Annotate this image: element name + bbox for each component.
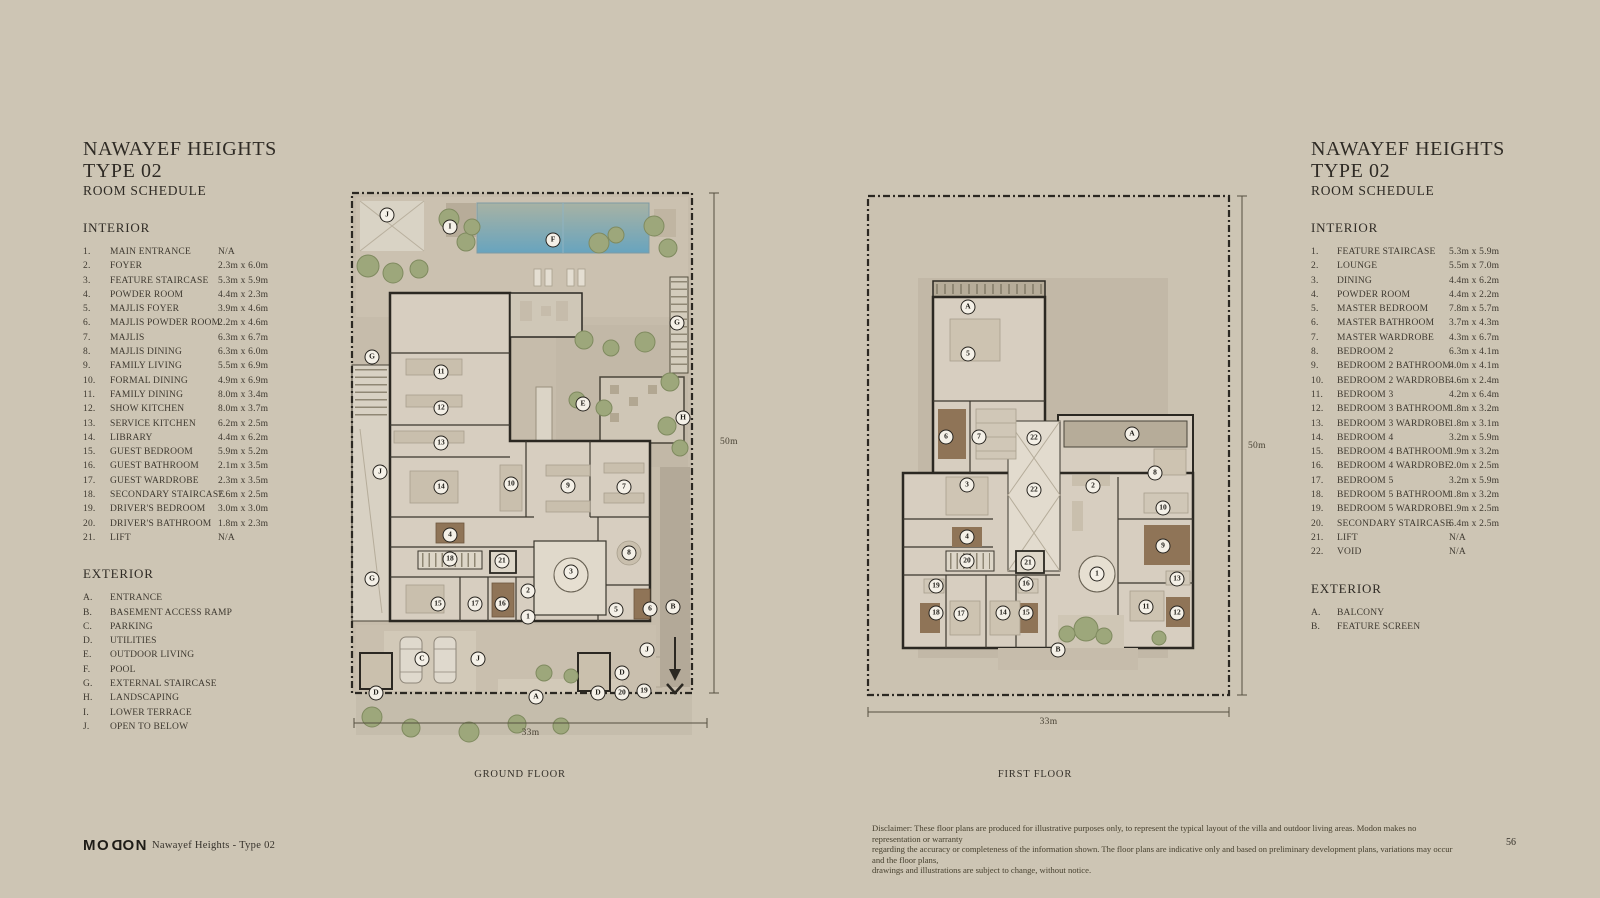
plan-marker: 14 (434, 480, 449, 495)
plan-marker: 5 (609, 603, 624, 618)
plan-marker: D (591, 686, 606, 701)
plan-marker: 16 (495, 597, 510, 612)
row-dimension: 5.3m x 5.9m (1449, 245, 1499, 259)
row-name: GUEST WARDROBE (110, 474, 218, 488)
row-number: 18. (1311, 488, 1337, 502)
plan-marker: 9 (1156, 539, 1171, 554)
row-name: POWDER ROOM (1337, 288, 1449, 302)
plan-marker: D (369, 686, 384, 701)
row-name: BEDROOM 3 (1337, 388, 1449, 402)
plan-marker: 6 (939, 430, 954, 445)
plan-marker: 3 (564, 565, 579, 580)
row-number: D. (83, 634, 110, 648)
row-name: BEDROOM 5 BATHROOM (1337, 488, 1449, 502)
row-dimension: 5.3m x 5.9m (218, 274, 268, 288)
row-name: GUEST BEDROOM (110, 445, 218, 459)
row-dimension: 2.0m x 2.5m (1449, 459, 1499, 473)
row-name: FORMAL DINING (110, 374, 218, 388)
row-number: 14. (1311, 431, 1337, 445)
row-number: E. (83, 648, 110, 662)
row-number: 21. (1311, 531, 1337, 545)
plan-marker: 8 (1148, 466, 1163, 481)
plan-marker: J (373, 465, 388, 480)
schedule-row: 17. BEDROOM 5 3.2m x 5.9m (1311, 474, 1511, 488)
row-name: LIFT (1337, 531, 1449, 545)
row-number: 9. (83, 359, 110, 373)
row-dimension: N/A (1449, 531, 1466, 545)
row-name: OUTDOOR LIVING (110, 648, 218, 662)
row-name: BEDROOM 3 WARDROBE (1337, 417, 1449, 431)
row-name: POOL (110, 663, 218, 677)
row-number: 5. (83, 302, 110, 316)
schedule-row: A. ENTRANCE (83, 591, 283, 605)
row-dimension: 3.0m x 3.0m (218, 502, 268, 516)
schedule-row: 18. BEDROOM 5 BATHROOM 1.8m x 3.2m (1311, 488, 1511, 502)
row-name: DINING (1337, 274, 1449, 288)
plan-marker: 15 (1019, 606, 1034, 621)
plan-marker: G (365, 350, 380, 365)
plan-marker: E (576, 397, 591, 412)
plan-marker: H (676, 411, 691, 426)
row-name: MAJLIS FOYER (110, 302, 218, 316)
schedule-row: 14. BEDROOM 4 3.2m x 5.9m (1311, 431, 1511, 445)
schedule-row: 21. LIFT N/A (83, 531, 283, 545)
row-dimension: 4.3m x 6.7m (1449, 331, 1499, 345)
plan-marker: B (666, 600, 681, 615)
plan-marker: 1 (1090, 567, 1105, 582)
ground-floor-markers: J I F G G 11 12 13 E H J 14 10 9 7 (348, 185, 740, 745)
plan-marker: 3 (960, 478, 975, 493)
disclaimer-line: drawings and illustrations are subject t… (872, 865, 1464, 876)
schedule-row: 3. FEATURE STAIRCASE 5.3m x 5.9m (83, 274, 283, 288)
schedule-row: 14. LIBRARY 4.4m x 6.2m (83, 431, 283, 445)
row-dimension: 1.9m x 3.2m (1449, 445, 1499, 459)
plan-marker: J (380, 208, 395, 223)
row-name: ENTRANCE (110, 591, 218, 605)
row-name: LIFT (110, 531, 218, 545)
first-height-dimension: 50m (1248, 441, 1266, 451)
schedule-row: 21. LIFT N/A (1311, 531, 1511, 545)
row-name: FEATURE STAIRCASE (110, 274, 218, 288)
row-number: 15. (83, 445, 110, 459)
row-number: H. (83, 691, 110, 705)
row-name: LOUNGE (1337, 259, 1449, 273)
plan-marker: C (415, 652, 430, 667)
plan-marker: 7 (617, 480, 632, 495)
row-dimension: 7.8m x 5.7m (1449, 302, 1499, 316)
row-number: 2. (83, 259, 110, 273)
row-name: MAIN ENTRANCE (110, 245, 218, 259)
interior-list: 1. FEATURE STAIRCASE 5.3m x 5.9m 2. LOUN… (1311, 245, 1511, 560)
plan-marker: 11 (434, 365, 449, 380)
row-number: I. (83, 706, 110, 720)
schedule-title-line3: ROOM SCHEDULE (1311, 182, 1511, 199)
row-dimension: 8.0m x 3.7m (218, 402, 268, 416)
plan-marker: 22 (1027, 483, 1042, 498)
plan-marker: 13 (1170, 572, 1185, 587)
row-number: 10. (1311, 374, 1337, 388)
plan-marker: 7 (972, 430, 987, 445)
schedule-row: 8. BEDROOM 2 6.3m x 4.1m (1311, 345, 1511, 359)
row-name: EXTERNAL STAIRCASE (110, 677, 218, 691)
schedule-title-line1: NAWAYEF HEIGHTS (1311, 138, 1511, 160)
row-dimension: 6.2m x 2.5m (218, 417, 268, 431)
row-number: 13. (83, 417, 110, 431)
row-dimension: 1.8m x 3.1m (1449, 417, 1499, 431)
interior-heading: INTERIOR (1311, 220, 1511, 236)
exterior-heading: EXTERIOR (83, 566, 283, 582)
plan-marker: 2 (1086, 479, 1101, 494)
schedule-row: A. BALCONY (1311, 606, 1511, 620)
logo-text: ON (123, 837, 149, 854)
row-name: PARKING (110, 620, 218, 634)
schedule-row: 15. GUEST BEDROOM 5.9m x 5.2m (83, 445, 283, 459)
first-floor-plan: A 5 6 7 22 A 3 22 2 8 10 9 4 20 21 (858, 183, 1278, 743)
row-name: BEDROOM 5 (1337, 474, 1449, 488)
row-number: 7. (83, 331, 110, 345)
row-number: 6. (83, 316, 110, 330)
plan-marker: 22 (1027, 431, 1042, 446)
footer-disclaimer: Disclaimer: These floor plans are produc… (872, 823, 1464, 876)
schedule-row: 5. MASTER BEDROOM 7.8m x 5.7m (1311, 302, 1511, 316)
row-number: 12. (1311, 402, 1337, 416)
row-name: BEDROOM 2 WARDROBE (1337, 374, 1449, 388)
row-number: 17. (1311, 474, 1337, 488)
plan-marker: 8 (622, 546, 637, 561)
row-name: GUEST BATHROOM (110, 459, 218, 473)
row-name: MAJLIS POWDER ROOM (110, 316, 218, 330)
plan-marker: 19 (929, 579, 944, 594)
row-dimension: 5.9m x 5.2m (218, 445, 268, 459)
row-dimension: N/A (218, 245, 235, 259)
modon-logo: MODON (83, 837, 148, 854)
plan-marker: 21 (495, 554, 510, 569)
row-number: 16. (1311, 459, 1337, 473)
row-dimension: 4.0m x 4.1m (1449, 359, 1499, 373)
schedule-row: 16. BEDROOM 4 WARDROBE 2.0m x 2.5m (1311, 459, 1511, 473)
room-schedule-left: NAWAYEF HEIGHTS TYPE 02 ROOM SCHEDULE IN… (83, 138, 283, 734)
row-name: SERVICE KITCHEN (110, 417, 218, 431)
plan-marker: 18 (443, 552, 458, 567)
exterior-heading: EXTERIOR (1311, 581, 1511, 597)
plan-marker: G (670, 316, 685, 331)
row-number: A. (83, 591, 110, 605)
row-name: MAJLIS (110, 331, 218, 345)
schedule-row: 12. SHOW KITCHEN 8.0m x 3.7m (83, 402, 283, 416)
plan-marker: 14 (996, 606, 1011, 621)
row-number: J. (83, 720, 110, 734)
row-name: FAMILY LIVING (110, 359, 218, 373)
schedule-row: 5. MAJLIS FOYER 3.9m x 4.6m (83, 302, 283, 316)
plan-marker: G (365, 572, 380, 587)
row-number: G. (83, 677, 110, 691)
row-name: BEDROOM 2 BATHROOM (1337, 359, 1449, 373)
row-dimension: 4.2m x 6.4m (1449, 388, 1499, 402)
schedule-title-line2: TYPE 02 (1311, 160, 1511, 182)
schedule-row: 9. BEDROOM 2 BATHROOM 4.0m x 4.1m (1311, 359, 1511, 373)
plan-marker: 20 (615, 686, 630, 701)
plan-marker: 4 (443, 528, 458, 543)
row-number: 10. (83, 374, 110, 388)
row-number: 4. (83, 288, 110, 302)
row-number: 17. (83, 474, 110, 488)
schedule-row: 2. FOYER 2.3m x 6.0m (83, 259, 283, 273)
row-dimension: 6.3m x 6.0m (218, 345, 268, 359)
schedule-row: 4. POWDER ROOM 4.4m x 2.2m (1311, 288, 1511, 302)
schedule-row: 16. GUEST BATHROOM 2.1m x 3.5m (83, 459, 283, 473)
row-number: 4. (1311, 288, 1337, 302)
row-number: 18. (83, 488, 110, 502)
plan-marker: 2 (521, 584, 536, 599)
row-number: 14. (83, 431, 110, 445)
schedule-row: H. LANDSCAPING (83, 691, 283, 705)
disclaimer-line: Disclaimer: These floor plans are produc… (872, 823, 1464, 844)
plan-marker: 5 (961, 347, 976, 362)
schedule-row: G. EXTERNAL STAIRCASE (83, 677, 283, 691)
schedule-row: 13. BEDROOM 3 WARDROBE 1.8m x 3.1m (1311, 417, 1511, 431)
schedule-row: 6. MASTER BATHROOM 3.7m x 4.3m (1311, 316, 1511, 330)
row-dimension: 3.7m x 4.3m (1449, 316, 1499, 330)
row-number: 1. (83, 245, 110, 259)
row-number: 2. (1311, 259, 1337, 273)
schedule-row: 17. GUEST WARDROBE 2.3m x 3.5m (83, 474, 283, 488)
plan-marker: 18 (929, 606, 944, 621)
row-dimension: 4.4m x 6.2m (1449, 274, 1499, 288)
row-number: F. (83, 663, 110, 677)
plan-marker: 17 (468, 597, 483, 612)
plan-marker: 11 (1139, 600, 1154, 615)
schedule-row: F. POOL (83, 663, 283, 677)
row-name: BEDROOM 4 BATHROOM (1337, 445, 1449, 459)
plan-marker: A (529, 690, 544, 705)
schedule-row: C. PARKING (83, 620, 283, 634)
row-number: 3. (1311, 274, 1337, 288)
row-name: BALCONY (1337, 606, 1449, 620)
row-number: 1. (1311, 245, 1337, 259)
row-number: 12. (83, 402, 110, 416)
row-number: 3. (83, 274, 110, 288)
schedule-row: 10. FORMAL DINING 4.9m x 6.9m (83, 374, 283, 388)
schedule-row: B. FEATURE SCREEN (1311, 620, 1511, 634)
logo-flipped-d: D (110, 837, 122, 854)
row-dimension: 1.8m x 3.2m (1449, 488, 1499, 502)
plan-marker: 16 (1019, 577, 1034, 592)
schedule-row: 13. SERVICE KITCHEN 6.2m x 2.5m (83, 417, 283, 431)
plan-marker: 13 (434, 436, 449, 451)
plan-marker: 17 (954, 607, 969, 622)
row-dimension: 3.2m x 5.9m (1449, 431, 1499, 445)
schedule-row: 20. SECONDARY STAIRCASE 6.4m x 2.5m (1311, 517, 1511, 531)
page-number: 56 (1506, 837, 1516, 848)
row-dimension: 1.9m x 2.5m (1449, 502, 1499, 516)
row-number: 15. (1311, 445, 1337, 459)
plan-marker: 10 (1156, 501, 1171, 516)
plan-marker: J (640, 643, 655, 658)
plan-marker: A (961, 300, 976, 315)
first-floor-caption: FIRST FLOOR (998, 769, 1072, 780)
schedule-row: 4. POWDER ROOM 4.4m x 2.3m (83, 288, 283, 302)
row-dimension: 1.8m x 3.2m (1449, 402, 1499, 416)
row-dimension: 2.3m x 6.0m (218, 259, 268, 273)
schedule-title-line2: TYPE 02 (83, 160, 283, 182)
schedule-row: 1. MAIN ENTRANCE N/A (83, 245, 283, 259)
plan-marker: B (1051, 643, 1066, 658)
row-dimension: 4.4m x 6.2m (218, 431, 268, 445)
schedule-title-line3: ROOM SCHEDULE (83, 182, 283, 199)
row-name: DRIVER'S BATHROOM (110, 517, 218, 531)
row-name: MASTER BEDROOM (1337, 302, 1449, 316)
row-number: 20. (83, 517, 110, 531)
plan-marker: 6 (643, 602, 658, 617)
plan-marker: A (1125, 427, 1140, 442)
row-name: BEDROOM 2 (1337, 345, 1449, 359)
room-schedule-right: NAWAYEF HEIGHTS TYPE 02 ROOM SCHEDULE IN… (1311, 138, 1511, 634)
row-dimension: 8.0m x 3.4m (218, 388, 268, 402)
plan-marker: F (546, 233, 561, 248)
row-dimension: 4.6m x 2.4m (1449, 374, 1499, 388)
plan-marker: 21 (1021, 556, 1036, 571)
row-name: SECONDARY STAIRCASE (1337, 517, 1449, 531)
row-number: 19. (1311, 502, 1337, 516)
schedule-row: 10. BEDROOM 2 WARDROBE 4.6m x 2.4m (1311, 374, 1511, 388)
exterior-list: A. BALCONY B. FEATURE SCREEN (1311, 606, 1511, 635)
row-number: C. (83, 620, 110, 634)
row-name: DRIVER'S BEDROOM (110, 502, 218, 516)
row-number: 19. (83, 502, 110, 516)
row-dimension: N/A (218, 531, 235, 545)
schedule-row: 12. BEDROOM 3 BATHROOM 1.8m x 3.2m (1311, 402, 1511, 416)
row-name: OPEN TO BELOW (110, 720, 218, 734)
ground-floor-caption: GROUND FLOOR (474, 769, 566, 780)
row-dimension: 6.3m x 6.7m (218, 331, 268, 345)
footer-doc-title: Nawayef Heights - Type 02 (152, 840, 275, 851)
plan-marker: 15 (431, 597, 446, 612)
plan-marker: 4 (960, 530, 975, 545)
schedule-row: 19. BEDROOM 5 WARDROBE 1.9m x 2.5m (1311, 502, 1511, 516)
plan-marker: J (471, 652, 486, 667)
row-name: BEDROOM 4 (1337, 431, 1449, 445)
row-name: LIBRARY (110, 431, 218, 445)
schedule-row: D. UTILITIES (83, 634, 283, 648)
schedule-row: 8. MAJLIS DINING 6.3m x 6.0m (83, 345, 283, 359)
row-name: FAMILY DINING (110, 388, 218, 402)
schedule-row: J. OPEN TO BELOW (83, 720, 283, 734)
row-number: 11. (83, 388, 110, 402)
row-name: SHOW KITCHEN (110, 402, 218, 416)
ground-floor-plan: J I F G G 11 12 13 E H J 14 10 9 7 (348, 185, 740, 745)
row-dimension: 5.5m x 6.9m (218, 359, 268, 373)
row-dimension: 3.2m x 5.9m (1449, 474, 1499, 488)
row-name: LOWER TERRACE (110, 706, 218, 720)
row-dimension: 4.4m x 2.3m (218, 288, 268, 302)
row-dimension: 1.8m x 2.3m (218, 517, 268, 531)
row-name: MASTER BATHROOM (1337, 316, 1449, 330)
schedule-row: 19. DRIVER'S BEDROOM 3.0m x 3.0m (83, 502, 283, 516)
plan-marker: 10 (504, 477, 519, 492)
row-number: 11. (1311, 388, 1337, 402)
row-dimension: 3.9m x 4.6m (218, 302, 268, 316)
row-dimension: 2.3m x 3.5m (218, 474, 268, 488)
row-dimension: 2.1m x 3.5m (218, 459, 268, 473)
row-name: FOYER (110, 259, 218, 273)
schedule-row: 11. BEDROOM 3 4.2m x 6.4m (1311, 388, 1511, 402)
row-dimension: 2.2m x 4.6m (218, 316, 268, 330)
row-name: SECONDARY STAIRCASE (110, 488, 218, 502)
row-name: FEATURE SCREEN (1337, 620, 1449, 634)
row-number: B. (1311, 620, 1337, 634)
row-name: FEATURE STAIRCASE (1337, 245, 1449, 259)
row-name: BEDROOM 5 WARDROBE (1337, 502, 1449, 516)
first-floor-markers: A 5 6 7 22 A 3 22 2 8 10 9 4 20 21 (858, 183, 1278, 743)
schedule-row: 22. VOID N/A (1311, 545, 1511, 559)
schedule-title-line1: NAWAYEF HEIGHTS (83, 138, 283, 160)
schedule-row: 6. MAJLIS POWDER ROOM 2.2m x 4.6m (83, 316, 283, 330)
schedule-row: 7. MASTER WARDROBE 4.3m x 6.7m (1311, 331, 1511, 345)
ground-height-dimension: 50m (720, 437, 738, 447)
plan-marker: 1 (521, 610, 536, 625)
schedule-row: 3. DINING 4.4m x 6.2m (1311, 274, 1511, 288)
row-name: BEDROOM 3 BATHROOM (1337, 402, 1449, 416)
row-dimension: 6.3m x 4.1m (1449, 345, 1499, 359)
schedule-row: E. OUTDOOR LIVING (83, 648, 283, 662)
row-number: 8. (83, 345, 110, 359)
row-name: BEDROOM 4 WARDROBE (1337, 459, 1449, 473)
row-name: MASTER WARDROBE (1337, 331, 1449, 345)
plan-marker: 9 (561, 479, 576, 494)
row-number: 8. (1311, 345, 1337, 359)
row-dimension: 5.5m x 7.0m (1449, 259, 1499, 273)
plan-marker: 12 (434, 401, 449, 416)
row-number: 7. (1311, 331, 1337, 345)
first-width-dimension: 33m (868, 717, 1229, 727)
row-name: POWDER ROOM (110, 288, 218, 302)
row-dimension: 6.4m x 2.5m (1449, 517, 1499, 531)
plan-marker: 20 (960, 554, 975, 569)
row-name: LANDSCAPING (110, 691, 218, 705)
row-number: 9. (1311, 359, 1337, 373)
schedule-row: 7. MAJLIS 6.3m x 6.7m (83, 331, 283, 345)
schedule-row: 11. FAMILY DINING 8.0m x 3.4m (83, 388, 283, 402)
logo-text: MO (83, 837, 110, 854)
row-number: 5. (1311, 302, 1337, 316)
row-dimension: 4.4m x 2.2m (1449, 288, 1499, 302)
row-number: 20. (1311, 517, 1337, 531)
exterior-list: A. ENTRANCE B. BASEMENT ACCESS RAMP C. P… (83, 591, 283, 734)
row-number: 16. (83, 459, 110, 473)
interior-heading: INTERIOR (83, 220, 283, 236)
floor-plan-brochure-page: { "left_schedule": { "title_line1": "NAW… (0, 0, 1600, 898)
row-name: BASEMENT ACCESS RAMP (110, 606, 218, 620)
schedule-row: B. BASEMENT ACCESS RAMP (83, 606, 283, 620)
schedule-row: 9. FAMILY LIVING 5.5m x 6.9m (83, 359, 283, 373)
row-number: 6. (1311, 316, 1337, 330)
row-number: 21. (83, 531, 110, 545)
plan-marker: 12 (1170, 606, 1185, 621)
schedule-row: 15. BEDROOM 4 BATHROOM 1.9m x 3.2m (1311, 445, 1511, 459)
row-number: A. (1311, 606, 1337, 620)
row-dimension: 4.9m x 6.9m (218, 374, 268, 388)
row-number: B. (83, 606, 110, 620)
row-dimension: N/A (1449, 545, 1466, 559)
plan-marker: D (615, 666, 630, 681)
plan-marker: I (443, 220, 458, 235)
schedule-row: 1. FEATURE STAIRCASE 5.3m x 5.9m (1311, 245, 1511, 259)
disclaimer-line: regarding the accuracy or completeness o… (872, 844, 1464, 865)
schedule-row: 20. DRIVER'S BATHROOM 1.8m x 2.3m (83, 517, 283, 531)
interior-list: 1. MAIN ENTRANCE N/A 2. FOYER 2.3m x 6.0… (83, 245, 283, 545)
row-name: UTILITIES (110, 634, 218, 648)
schedule-row: I. LOWER TERRACE (83, 706, 283, 720)
